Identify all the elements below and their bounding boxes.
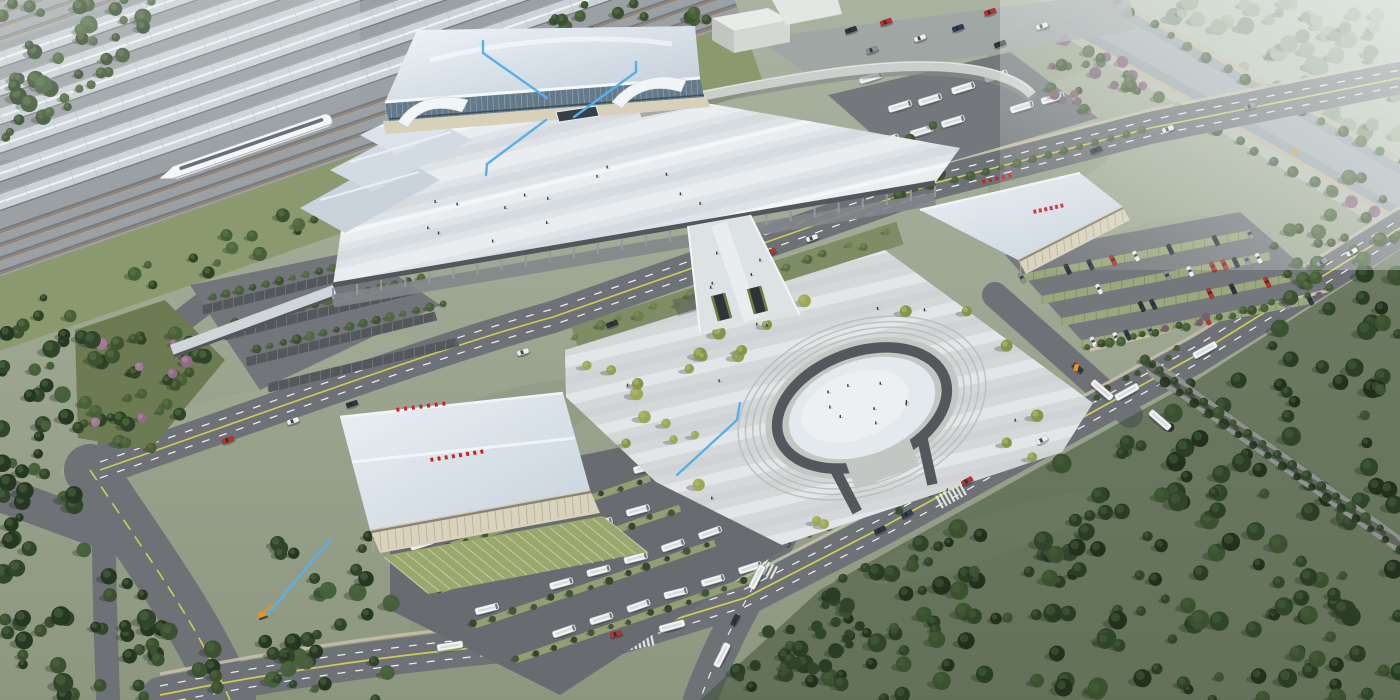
rendering-canvas: [0, 0, 1400, 700]
aerial-rendering: [0, 0, 1400, 700]
